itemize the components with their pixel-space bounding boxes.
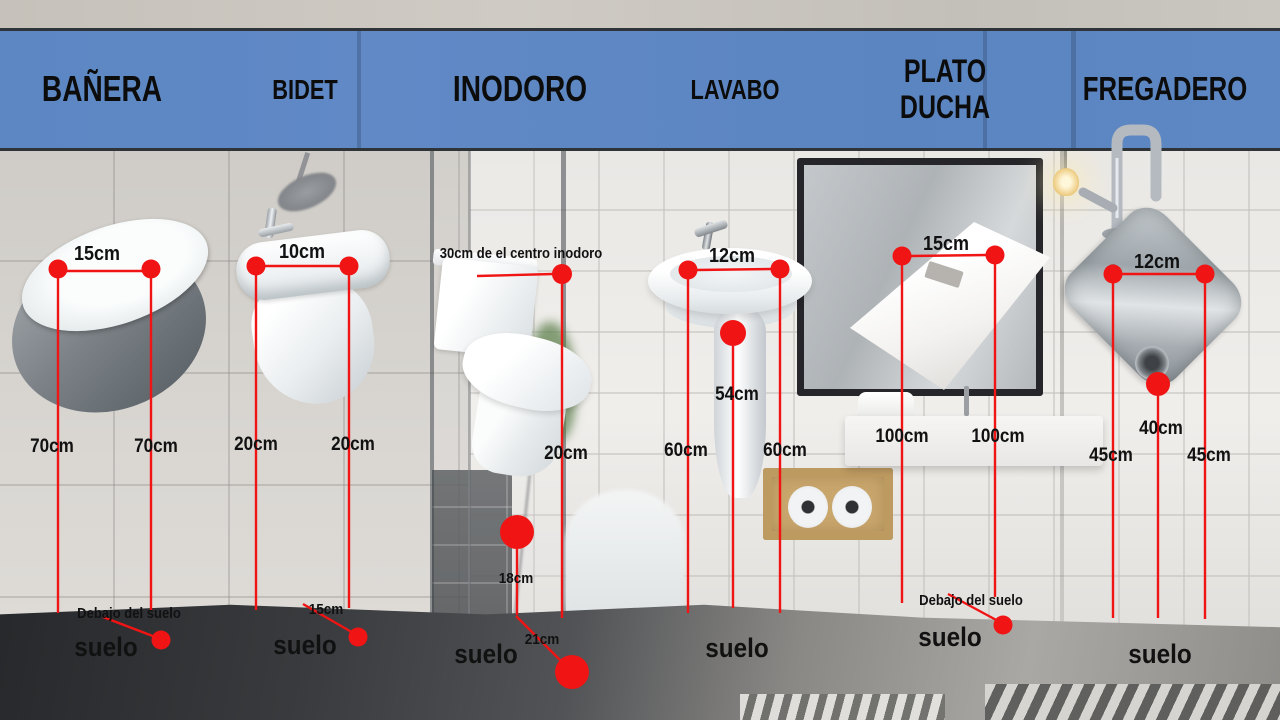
measure-dot-large bbox=[555, 655, 589, 689]
inodoro-offset-label: 30cm de el centro inodoro bbox=[440, 246, 602, 262]
bidet-left-height-label: 20cm bbox=[234, 434, 278, 456]
banera-width-label: 15cm bbox=[74, 243, 120, 266]
banera-floor-label: suelo bbox=[74, 632, 137, 663]
measure-line bbox=[696, 269, 772, 270]
banera-right-height-label: 70cm bbox=[134, 436, 178, 458]
lavabo-right-height-label: 60cm bbox=[763, 440, 807, 462]
lavabo-left-height-label: 60cm bbox=[664, 440, 708, 462]
fregadero-right-height-label: 45cm bbox=[1187, 445, 1231, 467]
inodoro-water-inlet-label: 18cm bbox=[499, 570, 534, 587]
measure-line bbox=[477, 274, 553, 276]
bidet-floor-label: suelo bbox=[273, 630, 336, 661]
infographic-bathroom-measurements: BAÑERA BIDET INODORO LAVABO PLATO DUCHA … bbox=[0, 0, 1280, 720]
measure-dot bbox=[893, 247, 912, 266]
inodoro-height-label: 20cm bbox=[544, 443, 588, 465]
lavabo-width-label: 12cm bbox=[709, 245, 755, 268]
plato-ducha-right-height-label: 100cm bbox=[971, 426, 1024, 448]
measure-dot bbox=[340, 257, 359, 276]
lavabo-drain-height-label: 54cm bbox=[715, 384, 759, 406]
measure-dot bbox=[552, 264, 572, 284]
inodoro-floor-label: suelo bbox=[454, 639, 517, 670]
lavabo-annotations bbox=[679, 260, 790, 614]
plato-ducha-width-label: 15cm bbox=[923, 233, 969, 256]
measure-dot-large bbox=[500, 515, 534, 549]
measure-dot bbox=[986, 246, 1005, 265]
plato-ducha-below-floor-label: Debajo del suelo bbox=[919, 593, 1023, 609]
measure-dot bbox=[679, 261, 698, 280]
measure-dot bbox=[247, 257, 266, 276]
fregadero-width-label: 12cm bbox=[1134, 251, 1180, 274]
bidet-right-height-label: 20cm bbox=[331, 434, 375, 456]
fregadero-drain-height-label: 40cm bbox=[1139, 418, 1183, 440]
measurement-annotations bbox=[0, 0, 1280, 720]
fregadero-left-height-label: 45cm bbox=[1089, 445, 1133, 467]
measure-dot-large bbox=[1146, 372, 1170, 396]
lavabo-floor-label: suelo bbox=[705, 633, 768, 664]
fregadero-annotations bbox=[1104, 265, 1215, 620]
bidet-width-label: 10cm bbox=[279, 241, 325, 264]
measure-dot bbox=[49, 260, 68, 279]
plato-ducha-left-height-label: 100cm bbox=[875, 426, 928, 448]
measure-dot-large bbox=[720, 320, 746, 346]
bidet-drain-label: 15cm bbox=[309, 601, 344, 618]
inodoro-annotations bbox=[477, 264, 589, 689]
plato-ducha-floor-label: suelo bbox=[918, 622, 981, 653]
measure-dot bbox=[771, 260, 790, 279]
banera-left-height-label: 70cm bbox=[30, 436, 74, 458]
measure-dot bbox=[349, 628, 368, 647]
measure-dot bbox=[1104, 265, 1123, 284]
measure-dot bbox=[152, 631, 171, 650]
measure-dot bbox=[1196, 265, 1215, 284]
measure-dot bbox=[994, 616, 1013, 635]
fregadero-floor-label: suelo bbox=[1128, 639, 1191, 670]
measure-dot bbox=[142, 260, 161, 279]
inodoro-drain-label: 21cm bbox=[525, 631, 560, 648]
banera-below-floor-label: Debajo del suelo bbox=[77, 606, 181, 622]
